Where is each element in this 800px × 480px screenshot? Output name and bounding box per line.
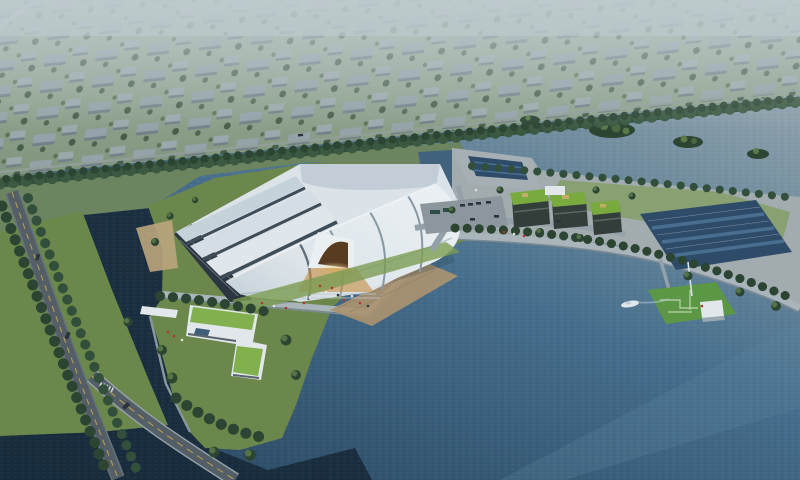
atmosphere-haze [0, 0, 800, 480]
aerial-rendering [0, 0, 800, 480]
rendering-canvas [0, 0, 800, 480]
